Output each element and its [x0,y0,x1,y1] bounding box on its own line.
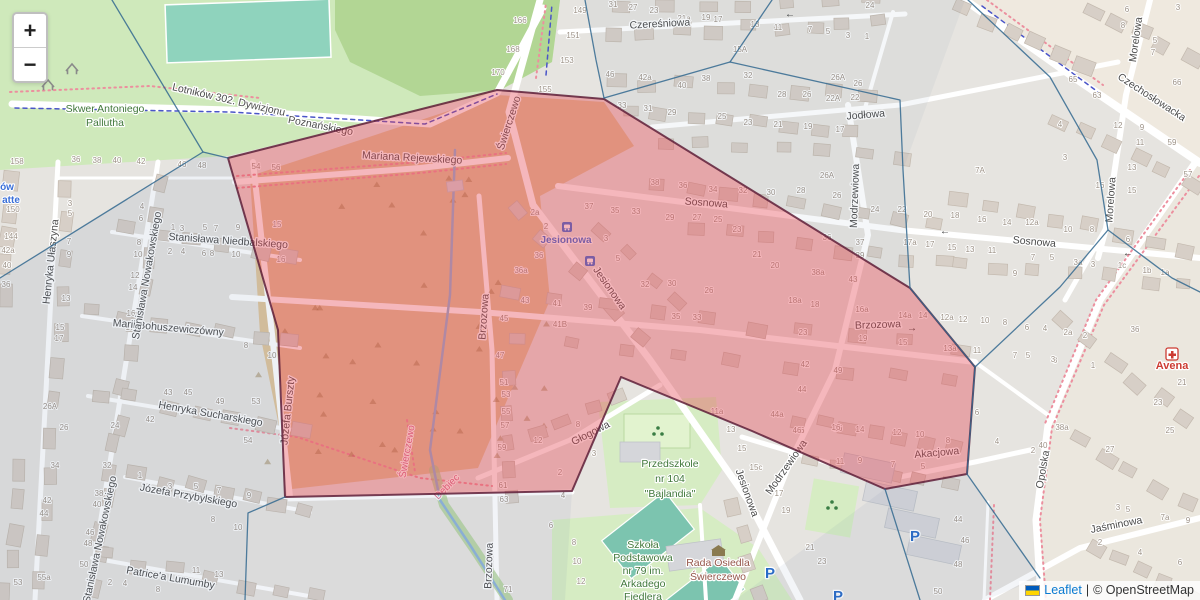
house-number: 12 [577,577,586,586]
osm-link[interactable]: © OpenStreetMap [1093,583,1194,597]
house-number: 59 [1168,138,1177,147]
house-number: 15 [1128,186,1137,195]
house-number: 3 [1176,3,1181,12]
house-number: 15 [948,243,957,252]
house-number: 6 [1025,323,1030,332]
house-number: 21 [1178,378,1187,387]
house-number: 12 [1114,121,1123,130]
house-number: 1c [1118,261,1126,270]
house-number: 7 [1031,253,1036,262]
poi-label: "Bajlandia" [645,488,696,500]
house-number: 19 [782,506,791,515]
poi-label: Rada Osiedla [686,557,750,569]
bus-stop-label: ów [0,182,14,193]
poi-label: Fiedlera [624,591,662,600]
building [982,200,998,212]
house-number: 8 [1003,318,1008,327]
poi-label: Skwer Antoniego [66,103,145,115]
house-number: 6 [1178,558,1183,567]
house-number: 66 [1173,78,1182,87]
house-number: 4 [1043,324,1048,333]
house-number: 11 [973,346,982,355]
house-number: 2 [1031,446,1036,455]
playground-icon [660,432,664,436]
house-number: 10 [981,316,990,325]
house-number: 6 [1126,235,1131,244]
house-number: 7A [975,166,985,175]
house-number: 15 [738,444,747,453]
oneway-arrow: ← [940,226,950,237]
playground-icon [830,500,834,504]
poi-label: Szkoła [627,539,659,551]
house-number: 5 [1126,505,1131,514]
house-number: 11 [988,246,997,255]
poi-label: Świerczewo [690,570,746,583]
house-number: 3 [1051,355,1056,364]
house-number: 151 [566,31,580,40]
building [1102,267,1117,282]
zoom-out-button[interactable]: − [14,48,46,81]
map-canvas: 31272321a1917131175312415A4642a403832282… [0,0,1200,600]
house-number: 10 [1064,225,1073,234]
house-number: 10 [573,557,582,566]
house-number: 5 [1050,253,1055,262]
house-number: 36 [72,155,81,164]
house-number: 144 [4,232,18,241]
pharmacy-label: Avena [1156,360,1189,372]
house-number: 2a [1064,328,1073,337]
building [58,181,71,198]
playground-icon [834,506,838,510]
house-number: 40 [3,261,12,270]
poi-label: Pallutha [86,117,124,129]
house-number: 158 [10,157,24,166]
house-number: 4 [1138,548,1143,557]
ukraine-flag-icon [1025,585,1040,596]
building [936,255,954,266]
attribution-separator: | [1086,583,1089,597]
house-number: 149 [573,6,587,15]
house-number: 38 [93,156,102,165]
house-number: 18 [951,211,960,220]
house-number: 2 [1083,331,1088,340]
house-number: 12a [940,313,954,322]
house-number: 168 [506,45,520,54]
building [1025,263,1039,275]
playground-icon [656,426,660,430]
house-number: 6 [975,408,980,417]
house-number: 3 [1116,503,1121,512]
house-number: 23 [1154,398,1163,407]
house-number: 153 [560,56,574,65]
bus-stop-label: atte [2,195,20,206]
house-number: 11 [1136,138,1145,147]
zoom-in-button[interactable]: + [14,14,46,48]
oneway-arrow: ← [1123,248,1133,259]
house-number: 3 [1091,260,1096,269]
house-number: 2 [1098,538,1103,547]
house-number: 9 [1140,123,1145,132]
cell-tint [245,491,572,600]
house-number: 170 [491,68,505,77]
house-number: 15c [750,463,763,472]
house-number: 14 [1003,218,1012,227]
house-number: 3 [592,449,597,458]
house-number: 40 [1039,441,1048,450]
house-number: 7a [1161,513,1170,522]
building [1142,277,1160,291]
house-number: 20 [924,210,933,219]
zoom-control: + − [12,12,48,83]
house-number: 42 [137,157,146,166]
poi-label: nr 104 [655,473,685,485]
poi-label: Arkadego [621,578,666,590]
house-number: 63 [1093,91,1102,100]
house-number: 16 [978,215,987,224]
house-number: 9 [1186,516,1191,525]
house-number: 1b [1143,266,1152,275]
poi-label: Podstawowa [613,552,673,564]
house-number: 7 [1151,48,1156,57]
house-number: 17 [926,240,935,249]
house-number: 1 [1091,361,1096,370]
leaflet-link[interactable]: Leaflet [1044,583,1082,597]
house-number: 8 [1121,21,1126,30]
playground-icon [826,506,830,510]
playground-icon [652,432,656,436]
house-number: 4 [995,437,1000,446]
house-number: 40 [113,156,122,165]
house-number: 8 [572,538,577,547]
attribution-bar: Leaflet | © OpenStreetMap [1019,581,1200,600]
building [1175,243,1194,260]
house-number: 9 [1013,269,1018,278]
house-number: 25 [1166,426,1175,435]
building [948,191,968,207]
house-number: 36 [1131,325,1140,334]
house-number: 5 [68,209,73,218]
house-number: 4 [1058,120,1063,129]
building [988,263,1008,275]
house-number: 42a [1,246,15,255]
house-number: 12 [959,315,968,324]
house-number: 150 [6,205,20,214]
house-number: 38a [1055,423,1069,432]
house-number: 8 [1090,225,1095,234]
building [1047,214,1063,228]
building [952,257,967,268]
house-number: 5 [1026,351,1031,360]
house-number: 166 [513,16,527,25]
house-number: 3 [68,199,73,208]
house-number: 57 [1184,170,1193,179]
house-number: 13 [966,245,975,254]
house-number: 5 [1153,36,1158,45]
house-number: 7 [1013,351,1018,360]
house-number: 27 [1106,445,1115,454]
poi-label: Przedszkole [641,458,698,470]
leaflet-map[interactable]: 31272321a1917131175312415A4642a403832282… [0,0,1200,600]
house-number: 3 [1063,153,1068,162]
house-number: 13 [727,425,736,434]
house-number: 6 [1125,5,1130,14]
house-number: 65 [1069,75,1078,84]
house-number: 12a [1025,218,1039,227]
sports-pitch [165,0,331,63]
poi-label: nr 79 im. [623,565,664,577]
house-number: 13 [1128,163,1137,172]
